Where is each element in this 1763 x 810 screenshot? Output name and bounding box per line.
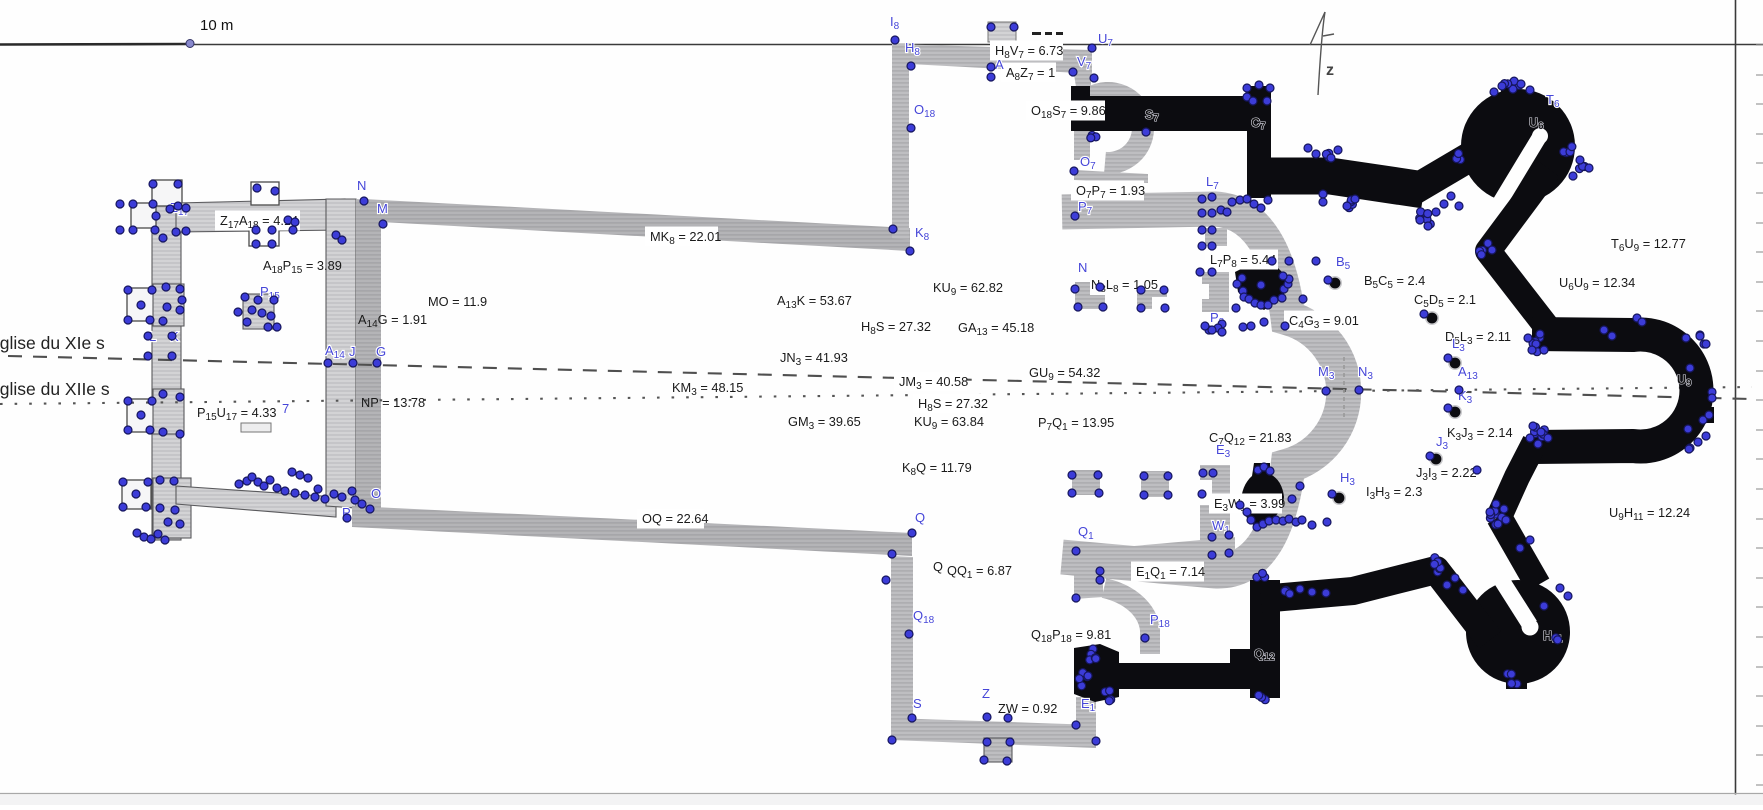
svg-text:NP = 13.78: NP = 13.78: [361, 395, 425, 410]
svg-text:église du XIe s: église du XIe s: [0, 333, 105, 353]
svg-text:N: N: [357, 178, 366, 193]
svg-text:M: M: [377, 201, 388, 216]
svg-text:Z: Z: [982, 686, 990, 701]
svg-text:N: N: [1078, 260, 1087, 275]
svg-text:A: A: [995, 57, 1004, 72]
svg-text:MO = 11.9: MO = 11.9: [428, 294, 487, 309]
svg-text:S: S: [913, 696, 922, 711]
svg-text:G: G: [376, 344, 386, 359]
svg-text:Q: Q: [933, 559, 943, 574]
svg-text:église du XIIe s: église du XIIe s: [0, 379, 110, 399]
svg-text:O: O: [371, 486, 381, 501]
svg-text:z: z: [1326, 62, 1334, 79]
svg-text:OQ = 22.64: OQ = 22.64: [642, 511, 709, 526]
svg-text:Q: Q: [915, 510, 925, 525]
svg-text:J: J: [349, 344, 356, 359]
svg-text:7: 7: [282, 401, 289, 416]
svg-text:10 m: 10 m: [200, 17, 233, 34]
